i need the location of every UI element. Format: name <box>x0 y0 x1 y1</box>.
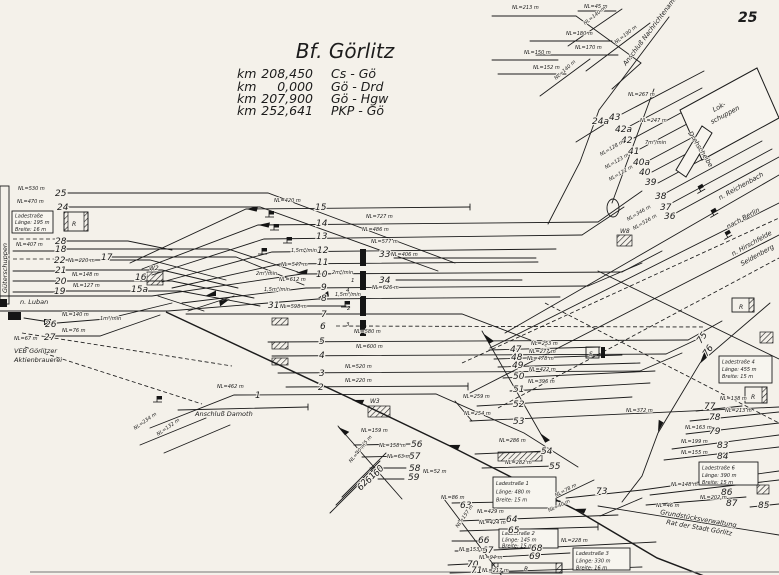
track-number-label: 9 <box>321 283 327 293</box>
track-number-label: 11 <box>317 258 328 268</box>
info-box-text: Länge: 195 m <box>15 220 50 226</box>
track-number-label: 53 <box>513 417 525 427</box>
hatched-structure <box>64 212 68 231</box>
track-number-label: 73 <box>596 487 608 497</box>
track-number-label: 1 <box>255 391 261 401</box>
signal-icon <box>707 208 718 218</box>
track-number-label: 83 <box>717 441 729 451</box>
track-number-label: 10 <box>316 270 328 280</box>
track-number-label: 26 <box>45 320 57 330</box>
info-box-text: Länge: 145 m <box>502 537 537 543</box>
track-number-label: 64 <box>506 515 518 525</box>
length-label: NL=727 m <box>366 214 393 220</box>
track-number-label: 36 <box>664 212 676 222</box>
length-label: NL=530 m <box>18 186 45 192</box>
length-label: NL=429 m <box>477 509 504 515</box>
track-number-label: 18 <box>55 245 67 255</box>
info-box-text: Breite: 16 m <box>576 566 607 572</box>
signal-icon <box>265 211 274 217</box>
length-label: NL=253 m <box>531 341 558 347</box>
track-number-label: 2 <box>318 383 324 393</box>
track-number-label: 78 <box>709 413 721 423</box>
track-number-label: 5 <box>319 337 325 347</box>
track-number-label: 87 <box>726 499 738 509</box>
length-label: NL=152 m <box>533 65 560 71</box>
info-box-text: Länge: 455 m <box>722 367 757 373</box>
water-crane-label: 1m³/min <box>100 316 121 322</box>
length-label: NL=462 m <box>217 384 244 390</box>
signal-icon <box>283 237 292 243</box>
annotation-label: n. Luban <box>20 298 48 306</box>
annotation-label: nach Berlin <box>725 206 761 231</box>
length-label: NL=626 m <box>372 285 399 291</box>
hatched-structure <box>556 563 562 573</box>
facility-label: R <box>524 566 528 573</box>
length-label: NL=155 m <box>681 450 708 456</box>
length-label: NL=234 m <box>133 411 158 431</box>
length-label: NL=199 m <box>681 439 708 445</box>
length-label: NL=163 m <box>685 425 712 431</box>
info-box-text: Länge: 390 m <box>702 473 737 479</box>
track-number-label: 75 <box>695 330 710 345</box>
track-number-label: 4 <box>319 351 325 361</box>
hatched-structure <box>617 235 632 246</box>
track-lines <box>0 9 779 575</box>
info-box-text: Ladestraße 3 <box>576 551 609 557</box>
track-number-label: 49 <box>512 361 524 371</box>
track-number-label: 7 <box>321 310 327 320</box>
switch-marker <box>338 423 349 435</box>
length-label: NL=140 m <box>62 312 89 318</box>
hatched-structure <box>147 272 163 285</box>
length-label: NL=286 m <box>499 438 526 444</box>
track-number-label: 22 <box>54 256 66 266</box>
track-number-label: 8 <box>321 294 327 304</box>
page-number: 25 <box>738 10 758 26</box>
length-label: NL=148 m <box>72 272 99 278</box>
hatched-structure <box>368 406 390 417</box>
track-number-label: 56 <box>411 440 423 450</box>
annotation-label: VEB Görlitzer <box>14 347 58 355</box>
length-label: NL=127 m <box>73 283 100 289</box>
length-label: NL=600 m <box>356 344 383 350</box>
length-label: NL=213 m <box>512 5 539 11</box>
track-number-label: 38 <box>655 192 667 202</box>
track-number-label: 6 <box>320 322 326 332</box>
length-label: NL=407 m <box>16 242 43 248</box>
length-label: NL=220 m <box>345 378 372 384</box>
facility-label: W3 <box>370 398 380 405</box>
switch-marker <box>258 220 270 228</box>
length-label: NL=282 m <box>505 460 532 466</box>
track-number-label: 15 <box>315 203 327 213</box>
annotation-label: Güterschuppen <box>1 243 9 293</box>
length-label: NL=202 m <box>700 495 727 501</box>
track-number-label: 50 <box>513 372 525 382</box>
length-label: NL=150 m <box>524 50 551 56</box>
track-number-label: 14 <box>316 219 328 229</box>
track-number-label: 40a <box>633 158 650 168</box>
switch-marker <box>296 268 308 275</box>
water-crane-label: 1,5m³/min <box>291 248 317 254</box>
length-label: NL=63 m <box>387 454 411 460</box>
track-number-label: 15a <box>131 285 148 295</box>
length-label: NL=598 m <box>280 304 307 310</box>
platform-bar <box>360 271 366 290</box>
hatched-structure <box>84 212 88 231</box>
facility-label: R <box>72 221 76 228</box>
water-crane-label: 1,5m³/min <box>264 287 290 293</box>
track-number-label: 69 <box>529 552 541 562</box>
switch-marker <box>540 430 550 442</box>
length-label: NL=153 m <box>459 547 486 553</box>
facility-label: W8 <box>620 228 630 235</box>
track-number-label: 16 <box>135 273 147 283</box>
length-label: NL=267 m <box>628 92 655 98</box>
facility-label: S <box>589 351 593 358</box>
length-label: NL=170 m <box>575 45 602 51</box>
track-number-label: 20 <box>55 277 67 287</box>
track-number-label: 71 <box>471 566 482 575</box>
km-route: PKP - Gö <box>331 103 384 118</box>
facility-label: R <box>739 304 743 311</box>
info-box-text: Breite: 15 m <box>722 374 753 380</box>
annotation-label: Anschluß Damoth <box>194 410 253 418</box>
length-label: NL=86 m <box>441 495 465 501</box>
length-label: NL=478 m <box>527 356 554 362</box>
track-number-label: 51 <box>513 385 524 395</box>
platform-bar <box>360 296 366 316</box>
hatched-structure <box>757 485 769 494</box>
signal-icon <box>258 248 267 254</box>
hatched-structure <box>272 358 288 365</box>
track-number-label: 41 <box>628 147 639 157</box>
length-label: NL=406 m <box>391 252 418 258</box>
length-label: NL=422 m <box>529 367 556 373</box>
track-number-label: 13 <box>316 232 328 242</box>
length-label: NL=577 m <box>371 239 398 245</box>
platform-bar <box>0 299 7 307</box>
length-label: NL=277 m <box>529 349 556 355</box>
platform-number-label: 4 <box>346 288 350 294</box>
length-label: NL=580 m <box>354 329 381 335</box>
length-label: NL=470 m <box>17 199 44 205</box>
length-label: NL=247 m <box>640 118 667 124</box>
track-number-label: 24a <box>592 117 609 127</box>
info-box-text: Länge: 330 m <box>576 558 611 564</box>
track-number-label: 27 <box>44 333 56 343</box>
length-label: NL=396 m <box>528 379 555 385</box>
main-trunk-line <box>166 312 704 575</box>
length-label: NL=94 m <box>479 555 503 561</box>
water-crane-label: 2m³/min <box>332 270 353 276</box>
water-crane-label: 7m³/min <box>645 140 666 146</box>
info-box-text: Länge: 480 m <box>496 489 531 495</box>
length-label: NL=220 m <box>68 258 95 264</box>
length-label: NL=180 m <box>566 31 593 37</box>
track-number-label: 57 <box>409 452 421 462</box>
length-label: NL=158 m <box>379 443 406 449</box>
switch-marker <box>246 204 258 212</box>
length-label: NL=217 m <box>482 568 509 574</box>
hatched-structure <box>760 332 773 343</box>
track-number-label: 65 <box>508 526 520 536</box>
info-box-text: Ladestraße <box>15 214 43 220</box>
track-number-label: 55 <box>549 462 561 472</box>
info-box-text: Breite: 15 m <box>502 544 533 550</box>
facility-label: R <box>751 394 755 401</box>
track-number-label: 40 <box>639 168 651 178</box>
length-label: NL=148 m <box>671 482 698 488</box>
info-box-text: Ladestraße 6 <box>702 465 735 471</box>
platform-bar <box>601 347 605 358</box>
signal-icon <box>153 396 162 402</box>
water-crane-label: 2m³/min <box>256 271 277 277</box>
gleisplan-page: Bf. Görlitz km 208,450 Cs - Gö km 0,000 … <box>0 0 779 575</box>
track-number-label: 85 <box>758 501 770 511</box>
length-label: NL=420 m <box>274 198 301 204</box>
length-label: NL=259 m <box>463 394 490 400</box>
hatched-structure <box>749 298 754 312</box>
length-label: NL=547 m <box>281 262 308 268</box>
facility-label: W2 <box>149 265 159 272</box>
platform-number-label: 3 <box>346 322 350 328</box>
length-label: NL=52 m <box>423 469 447 475</box>
track-diagram: Bf. Görlitz km 208,450 Cs - Gö km 0,000 … <box>0 0 779 575</box>
length-label: NL=76 m <box>62 328 86 334</box>
length-label: NL=40 m <box>348 442 368 464</box>
track-number-label: 21 <box>55 266 66 276</box>
track-number-label: 19 <box>54 287 66 297</box>
track-number-label: 3 <box>319 369 325 379</box>
platform-number-label: 1 <box>351 278 355 284</box>
km-value: 252,641 <box>261 103 313 118</box>
platform-bar <box>360 249 366 266</box>
length-label: NL=46 m <box>656 503 680 509</box>
track-number-label: 66 <box>478 536 490 546</box>
length-label: NL=424 m <box>479 520 506 526</box>
info-box-text: Ladestraße 4 <box>722 359 755 365</box>
length-label: NL=254 m <box>464 411 491 417</box>
length-label: NL=520 m <box>345 364 372 370</box>
length-label: NL=213 m <box>725 408 752 414</box>
track-number-label: 43 <box>609 113 621 123</box>
track-number-label: 31 <box>268 301 279 311</box>
track-number-label: 59 <box>408 473 420 483</box>
hatched-structure <box>272 318 288 325</box>
length-label: NL=67 m <box>14 336 38 342</box>
length-label: NL=159 m <box>361 428 388 434</box>
hatched-structure <box>272 342 288 349</box>
switch-marker <box>205 291 216 297</box>
length-label: NL=78 m <box>554 482 578 498</box>
info-box-text: Breite: 16 m <box>15 227 46 233</box>
platform-bar <box>8 312 21 320</box>
length-label: NL=372 m <box>626 408 653 414</box>
signal-icon <box>694 184 705 194</box>
track-number-label: 52 <box>513 400 525 410</box>
length-label: NL=138 m <box>720 396 747 402</box>
track-number-label: 54 <box>541 447 553 457</box>
annotation-label: Aktienbrauerei <box>13 356 62 364</box>
track-number-label: 42a <box>615 125 632 135</box>
length-label: NL=228 m <box>561 538 588 544</box>
track-number-label: 25 <box>55 189 67 199</box>
length-label: NL=486 m <box>362 227 389 233</box>
platform-number-label: 2 <box>347 306 351 312</box>
info-box-text: Breite: 15 m <box>702 480 733 486</box>
track-number-label: 33 <box>379 250 391 260</box>
track-number-label: 17 <box>101 253 113 263</box>
track-number-label: 24 <box>57 203 69 213</box>
track-number-label: 39 <box>645 178 657 188</box>
hatched-structure <box>762 387 767 403</box>
info-box-text: Breite: 15 m <box>496 498 527 504</box>
length-label: NL=612 m <box>279 277 306 283</box>
track-number-label: 84 <box>717 452 729 462</box>
info-box-text: Ladestraße 1 <box>496 481 529 487</box>
track-number-label: 12 <box>317 246 329 256</box>
station-title: Bf. Görlitz <box>296 39 395 63</box>
track-number-label: 77 <box>704 402 716 412</box>
km-prefix: km <box>237 103 256 118</box>
